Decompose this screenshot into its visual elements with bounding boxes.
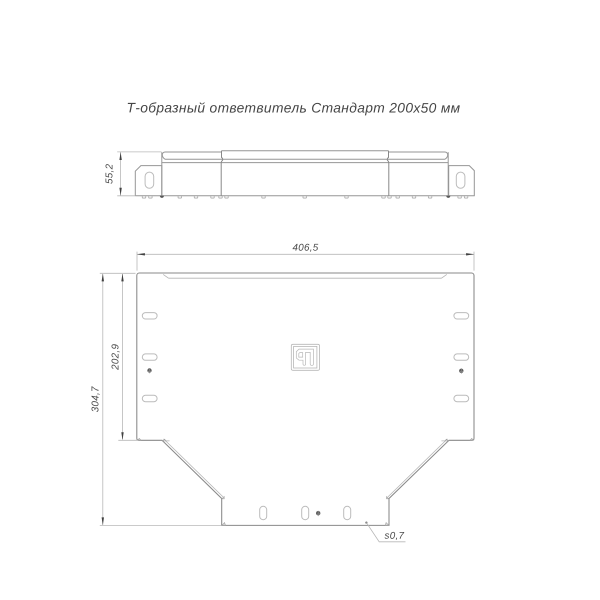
svg-text:202,9: 202,9 (111, 344, 122, 371)
svg-text:406,5: 406,5 (292, 243, 318, 254)
svg-text:55,2: 55,2 (105, 163, 116, 184)
svg-text:s0,7: s0,7 (384, 531, 404, 542)
svg-text:Т-образный ответвитель Стандар: Т-образный ответвитель Стандарт 200х50 м… (127, 100, 461, 115)
svg-text:304,7: 304,7 (90, 386, 101, 412)
